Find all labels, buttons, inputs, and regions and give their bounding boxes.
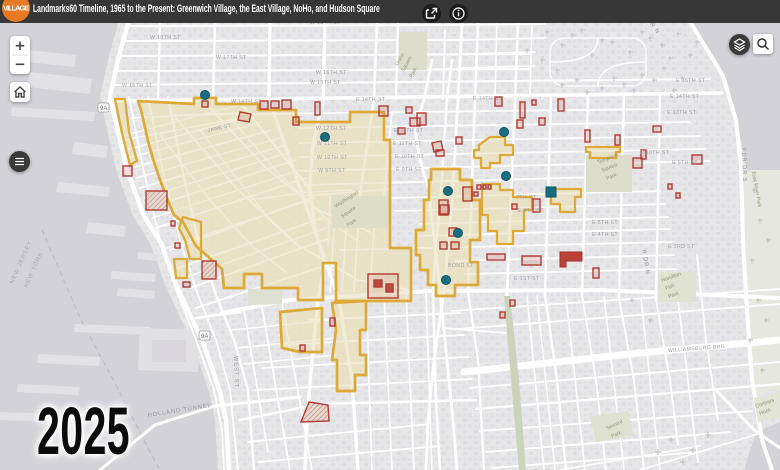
svg-text:E 11TH ST: E 11TH ST [393, 141, 422, 147]
svg-text:W 18TH ST: W 18TH ST [150, 35, 181, 41]
svg-text:7TH ST: 7TH ST [516, 195, 537, 201]
svg-text:VILLAGE: VILLAGE [3, 4, 29, 13]
svg-text:W 14TH ST: W 14TH ST [231, 99, 262, 105]
svg-text:E 9TH ST: E 9TH ST [672, 160, 698, 166]
svg-text:E 13TH ST: E 13TH ST [667, 110, 697, 116]
svg-text:E 9TH ST: E 9TH ST [396, 167, 422, 173]
svg-text:W 15TH ST: W 15TH ST [310, 80, 341, 86]
svg-text:E 14TH ST: E 14TH ST [356, 97, 386, 103]
svg-text:W 11TH ST: W 11TH ST [317, 141, 348, 147]
svg-text:BOND ST: BOND ST [448, 263, 474, 269]
svg-text:E 10TH ST: E 10TH ST [640, 150, 670, 156]
svg-text:W 16TH ST: W 16TH ST [316, 70, 347, 76]
svg-text:E 14TH ST: E 14TH ST [473, 96, 503, 102]
svg-text:W 9TH ST: W 9TH ST [318, 168, 346, 174]
svg-text:E 12TH ST: E 12TH ST [394, 128, 424, 134]
svg-text:E 10TH ST: E 10TH ST [395, 154, 425, 160]
svg-text:W 17TH ST: W 17TH ST [216, 55, 247, 61]
svg-text:W 10TH ST: W 10TH ST [317, 155, 348, 161]
svg-text:E 1ST ST: E 1ST ST [514, 276, 540, 282]
svg-text:E 5TH ST: E 5TH ST [592, 220, 618, 226]
svg-text:E 3RD ST: E 3RD ST [668, 244, 695, 250]
svg-text:E 4TH ST: E 4TH ST [592, 232, 618, 238]
svg-text:FDR DR S: FDR DR S [740, 148, 747, 183]
svg-text:E 14TH ST: E 14TH ST [670, 94, 700, 100]
svg-text:W 15TH ST: W 15TH ST [122, 83, 153, 89]
svg-text:E 15TH ST: E 15TH ST [676, 78, 706, 84]
svg-text:E 6TH ST: E 6TH ST [518, 208, 544, 214]
svg-text:W 12TH ST: W 12TH ST [316, 126, 347, 132]
svg-text:WEST ST: WEST ST [232, 356, 239, 388]
svg-text:9A: 9A [100, 106, 107, 112]
svg-text:9A: 9A [201, 334, 208, 340]
